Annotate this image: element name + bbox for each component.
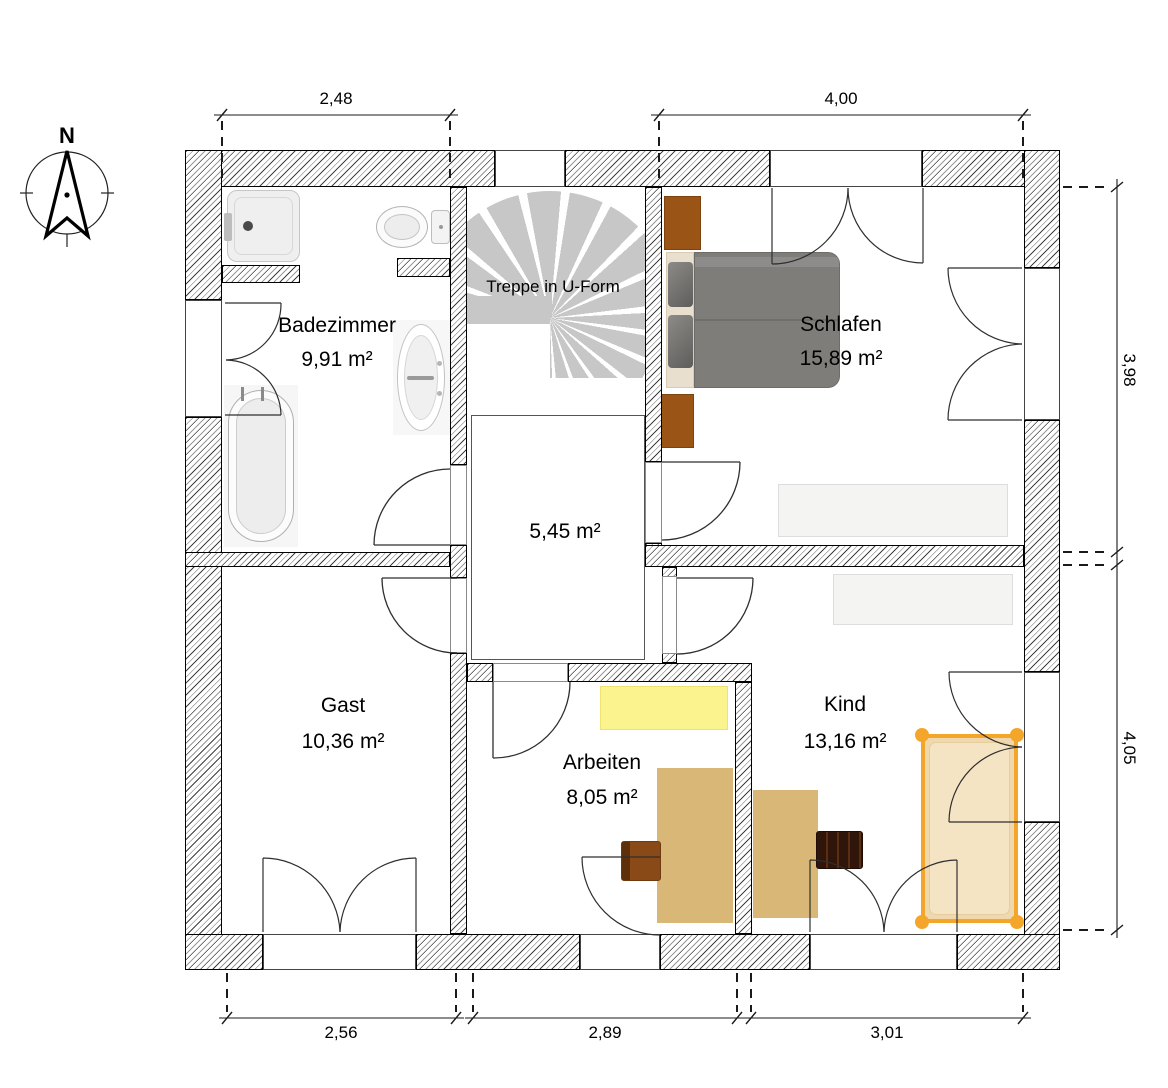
wall-top-2[interactable] <box>565 150 770 187</box>
wall-bottom-2[interactable] <box>416 934 580 970</box>
window-arbeiten-bottom[interactable] <box>580 934 660 970</box>
window-gast-bottom[interactable] <box>263 934 416 970</box>
dim-label-bottom-left[interactable]: 2,56 <box>324 1023 357 1043</box>
door-swing-arbeiten <box>493 682 570 758</box>
wall-top-1[interactable] <box>185 150 495 187</box>
bathtub[interactable] <box>228 390 294 542</box>
bathtub-faucet-icon2 <box>261 387 264 401</box>
wall-arbeiten-kind[interactable] <box>735 682 752 934</box>
shower[interactable] <box>227 190 300 262</box>
bathtub-faucet-icon <box>241 387 244 401</box>
dimension-bottom-left[interactable] <box>219 973 464 1024</box>
wall-schlafen-kind[interactable] <box>645 545 1024 567</box>
dimension-bottom-right[interactable] <box>743 973 1031 1024</box>
wall-stub-toilet[interactable] <box>397 258 450 277</box>
dim-label-top-left[interactable]: 2,48 <box>319 89 352 109</box>
toilet-bowl <box>384 214 420 240</box>
casement-gast-bottom <box>263 858 416 932</box>
sideboard-yellow[interactable] <box>600 686 728 730</box>
chair-kind[interactable] <box>816 831 863 869</box>
room-area-arbeiten[interactable]: 8,05 m² <box>566 786 637 810</box>
door-swing-schlafen <box>662 462 740 540</box>
washbasin-tap-dot2 <box>437 391 442 396</box>
room-area-kind[interactable]: 13,16 m² <box>804 730 887 754</box>
compass-center-dot <box>64 192 69 197</box>
wall-bottom-1[interactable] <box>185 934 263 970</box>
window-kind-bottom[interactable] <box>810 934 957 970</box>
selection-handle-ne[interactable] <box>1010 728 1024 742</box>
wall-bottom-3[interactable] <box>660 934 810 970</box>
nightstand-top[interactable] <box>664 196 701 250</box>
door-swing-gast <box>382 578 457 653</box>
wall-right-2[interactable] <box>1024 420 1060 672</box>
wall-left-2[interactable] <box>185 417 222 970</box>
door-kind[interactable] <box>662 576 677 654</box>
wardrobe-schlafen[interactable] <box>778 484 1008 537</box>
room-label-schlafen[interactable]: Schlafen <box>800 313 882 337</box>
north-arrow-icon <box>46 151 88 236</box>
door-badezimmer[interactable] <box>450 465 467 545</box>
door-arbeiten[interactable] <box>493 663 568 682</box>
bed-pillow-2 <box>668 315 693 368</box>
wall-bad-stair-mid[interactable] <box>450 545 467 578</box>
chair-back <box>622 842 630 880</box>
stairs-label[interactable]: Treppe in U-Form <box>486 277 620 297</box>
chair-arbeiten[interactable] <box>621 841 661 881</box>
window-bad-left[interactable] <box>185 300 222 417</box>
wall-stub-shower[interactable] <box>222 265 300 283</box>
bed-pillow-1 <box>668 262 693 307</box>
dim-label-bottom-middle[interactable]: 2,89 <box>588 1023 621 1043</box>
washbasin-drain-slot <box>407 376 434 380</box>
window-schlafen-top[interactable] <box>770 150 922 187</box>
window-schlafen-right[interactable] <box>1024 268 1060 420</box>
dimension-bottom-middle[interactable] <box>465 973 745 1024</box>
desk-kind[interactable] <box>753 790 818 918</box>
wall-left-1[interactable] <box>185 150 222 300</box>
shower-faucet-icon <box>224 213 232 241</box>
room-area-flur[interactable]: 5,45 m² <box>529 520 600 544</box>
compass-north-label: N <box>59 123 75 149</box>
room-label-gast[interactable]: Gast <box>321 694 365 718</box>
washbasin-tap-dot <box>437 361 442 366</box>
room-area-badezimmer[interactable]: 9,91 m² <box>301 348 372 372</box>
kind-bed-selected[interactable] <box>921 734 1018 923</box>
window-kind-right[interactable] <box>1024 672 1060 822</box>
window-stairwell-top[interactable] <box>495 150 565 187</box>
wall-bottom-4[interactable] <box>957 934 1060 970</box>
dimension-right-upper[interactable] <box>1063 179 1123 560</box>
door-swing-badezimmer <box>374 469 450 545</box>
desk-arbeiten[interactable] <box>657 768 733 923</box>
kind-bed-mattress <box>929 742 1010 915</box>
selection-handle-sw[interactable] <box>915 915 929 929</box>
door-swing-kind <box>677 578 753 654</box>
selection-handle-se[interactable] <box>1010 915 1024 929</box>
room-label-kind[interactable]: Kind <box>824 693 866 717</box>
room-area-schlafen[interactable]: 15,89 m² <box>800 347 883 371</box>
toilet-cistern[interactable] <box>431 210 450 244</box>
room-label-arbeiten[interactable]: Arbeiten <box>563 751 641 775</box>
cistern-button <box>439 225 443 229</box>
dim-label-top-right[interactable]: 4,00 <box>824 89 857 109</box>
dimension-right-lower[interactable] <box>1063 557 1123 938</box>
room-area-gast[interactable]: 10,36 m² <box>302 730 385 754</box>
room-label-badezimmer[interactable]: Badezimmer <box>278 314 396 338</box>
wall-right-1[interactable] <box>1024 150 1060 268</box>
compass-circle <box>26 152 108 234</box>
toilet[interactable] <box>376 206 428 248</box>
stairs-straight-flight[interactable] <box>462 296 552 324</box>
dim-label-bottom-right[interactable]: 3,01 <box>870 1023 903 1043</box>
selection-handle-nw[interactable] <box>915 728 929 742</box>
stairs-lower-flight[interactable] <box>550 318 652 378</box>
bathtub-inner <box>236 398 286 534</box>
compass[interactable]: N <box>0 100 140 260</box>
washbasin[interactable] <box>397 324 445 431</box>
door-gast[interactable] <box>450 578 467 653</box>
floor-plan-canvas: N <box>0 0 1168 1088</box>
dim-label-right-lower[interactable]: 4,05 <box>1119 731 1139 764</box>
wall-arbeiten-top-1[interactable] <box>467 663 493 682</box>
door-schlafen[interactable] <box>645 462 662 543</box>
wall-bad-gast[interactable] <box>185 552 450 567</box>
wall-gast-hall[interactable] <box>450 653 467 934</box>
wall-arbeiten-top-2[interactable] <box>568 663 752 682</box>
shower-drain <box>243 221 253 231</box>
wardrobe-kind[interactable] <box>833 574 1013 625</box>
wall-bad-stair-upper[interactable] <box>450 187 467 465</box>
wall-stair-schlafen-upper[interactable] <box>645 187 662 462</box>
nightstand-bottom[interactable] <box>661 394 694 448</box>
dim-label-right-upper[interactable]: 3,98 <box>1119 353 1139 386</box>
casement-schlafen-right <box>948 268 1022 420</box>
